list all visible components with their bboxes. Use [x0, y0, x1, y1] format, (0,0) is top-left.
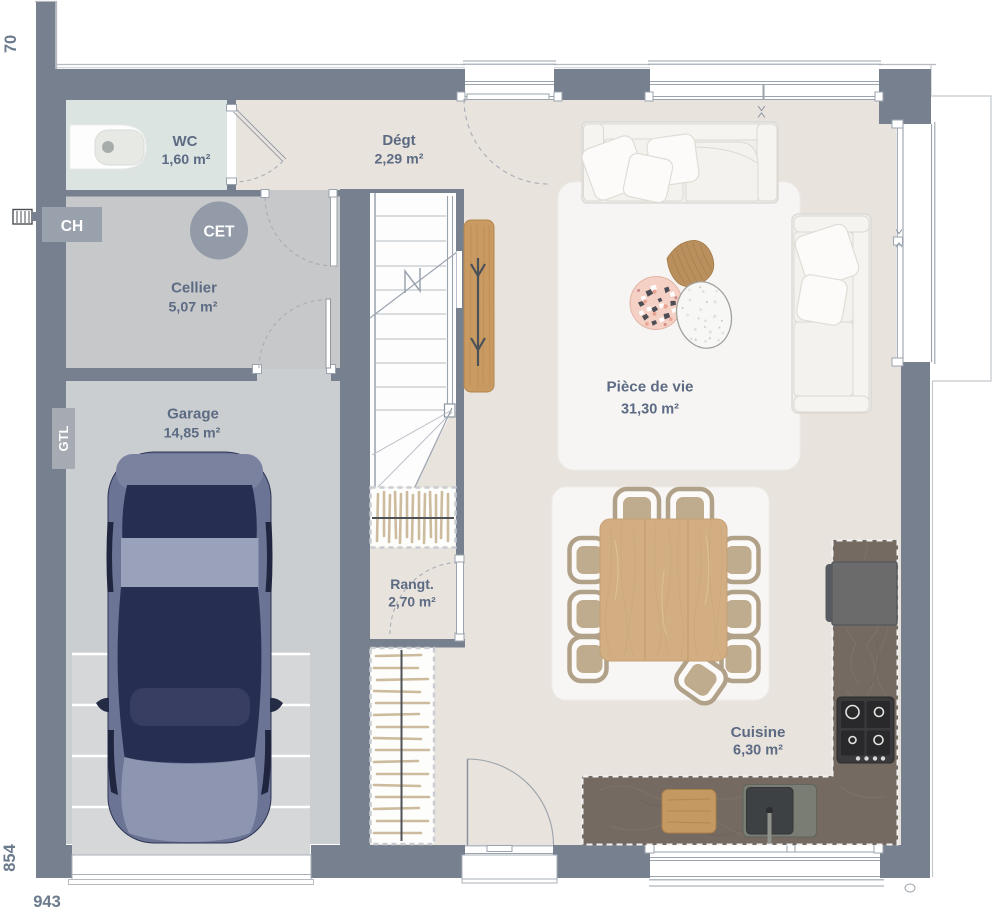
svg-text:Dégt: Dégt [382, 132, 415, 149]
svg-text:70: 70 [2, 35, 20, 53]
svg-text:Garage: Garage [167, 406, 219, 423]
svg-text:GTL: GTL [56, 425, 71, 451]
svg-text:6,30 m²: 6,30 m² [733, 743, 783, 759]
svg-text:854: 854 [1, 843, 19, 871]
svg-text:Pièce de vie: Pièce de vie [607, 379, 694, 396]
svg-text:2,29 m²: 2,29 m² [375, 152, 424, 168]
svg-text:31,30 m²: 31,30 m² [621, 402, 679, 418]
svg-text:14,85 m²: 14,85 m² [164, 426, 221, 442]
svg-text:1,60 m²: 1,60 m² [162, 152, 211, 168]
svg-text:CET: CET [204, 224, 236, 241]
svg-text:2,70 m²: 2,70 m² [388, 595, 436, 610]
svg-text:Cuisine: Cuisine [731, 724, 786, 741]
svg-text:WC: WC [173, 133, 198, 150]
svg-text:943: 943 [33, 893, 61, 911]
svg-text:Rangt.: Rangt. [390, 576, 434, 592]
svg-text:5,07 m²: 5,07 m² [169, 300, 218, 316]
svg-text:CH: CH [61, 218, 83, 235]
svg-text:Cellier: Cellier [171, 280, 217, 297]
